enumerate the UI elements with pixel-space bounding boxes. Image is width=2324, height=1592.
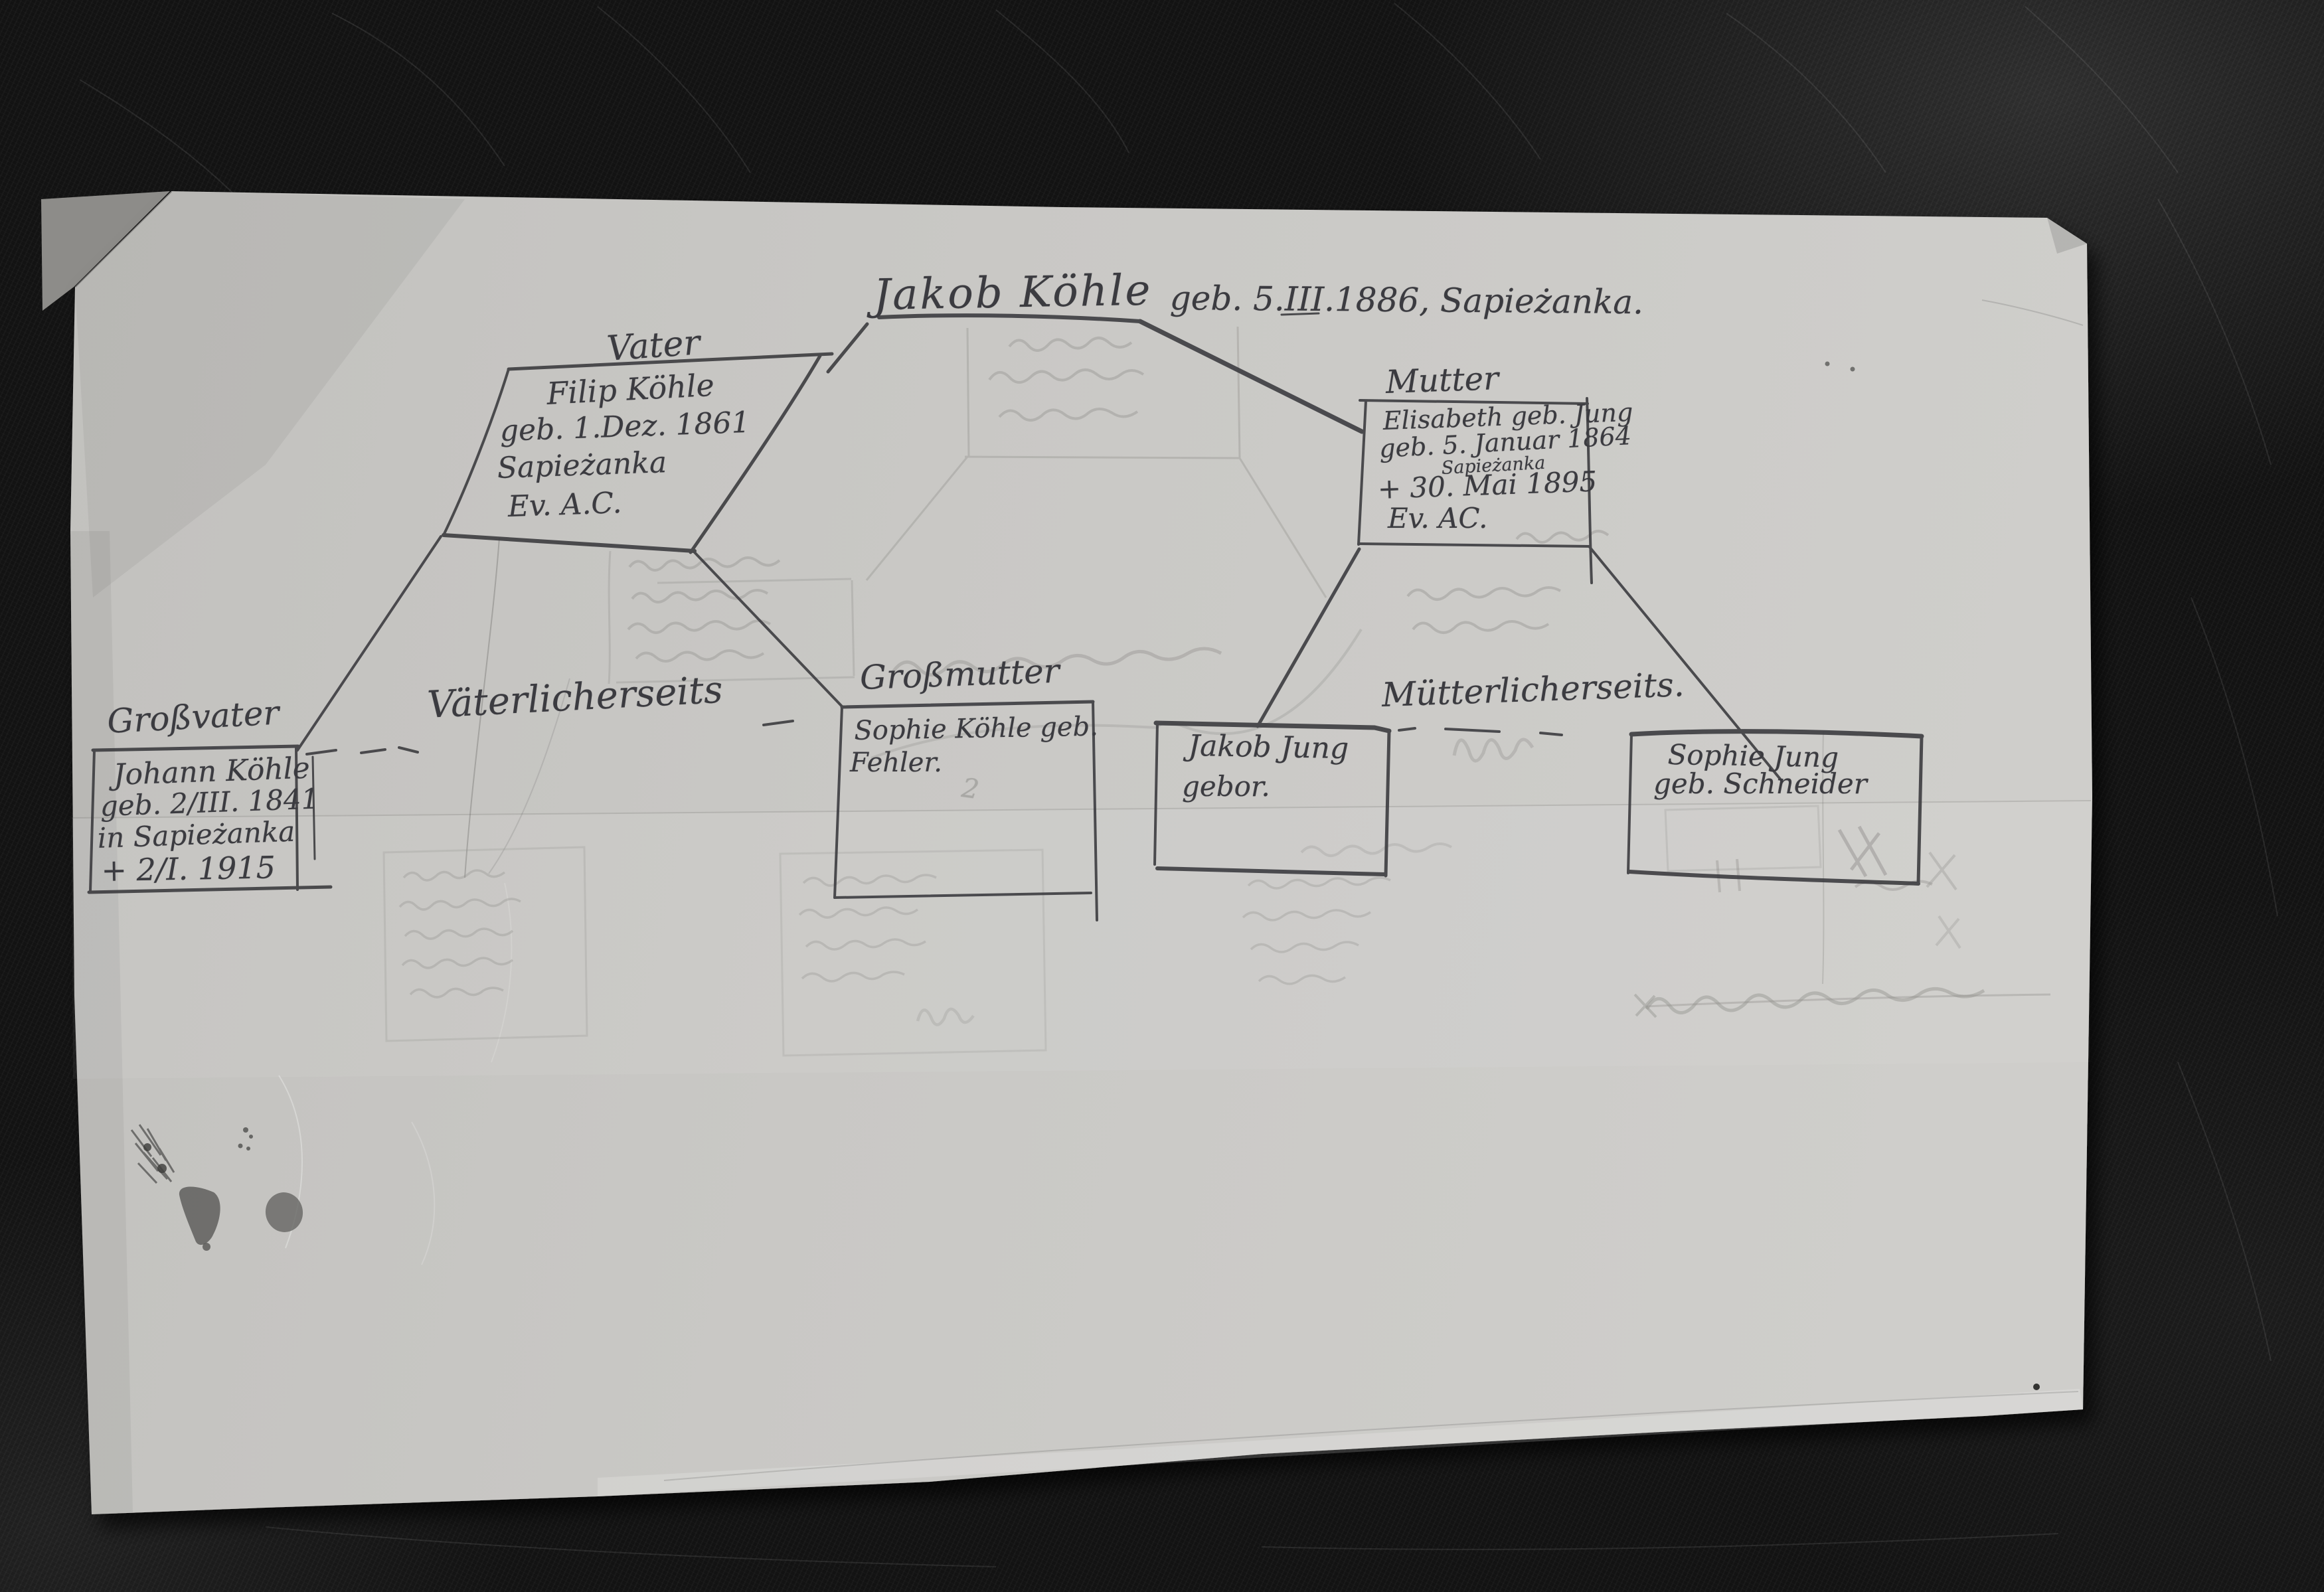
vater-label: Vater [606, 323, 701, 369]
vater-place: Sapieżanka [497, 445, 667, 485]
mutter-label: Mutter [1385, 360, 1499, 401]
paper-sheet [70, 191, 2092, 1514]
vater-religion: Ev. A.C. [507, 486, 622, 524]
jakob-jung-note: gebor. [1182, 770, 1270, 803]
scan-light-band [72, 801, 2091, 1079]
sophie-jung-maidenname: geb. Schneider [1653, 767, 1867, 800]
jakob-jung-name: Jakob Jung [1188, 729, 1349, 765]
photo-of-family-tree: Jakob Köhle geb. 5.III.1886, Sapieżanka.… [0, 0, 2324, 1592]
grossvater-place: in Sapieżanka [97, 815, 295, 854]
grossmutter-label: Großmutter [859, 652, 1060, 697]
grossvater-death: + 2/I. 1915 [101, 849, 276, 888]
grossmutter-maidenname: Fehler. [850, 748, 942, 778]
mutter-religion: Ev. AC. [1388, 502, 1487, 534]
person-title-birth: geb. 5.III.1886, Sapieżanka. [1169, 279, 1643, 321]
grossmutter-name: Sophie Köhle geb. [854, 712, 1098, 746]
scan-artwork [0, 0, 2324, 1592]
speck-bottom-right [2033, 1384, 2040, 1390]
person-title-name: Jakob Köhle [873, 266, 1153, 320]
